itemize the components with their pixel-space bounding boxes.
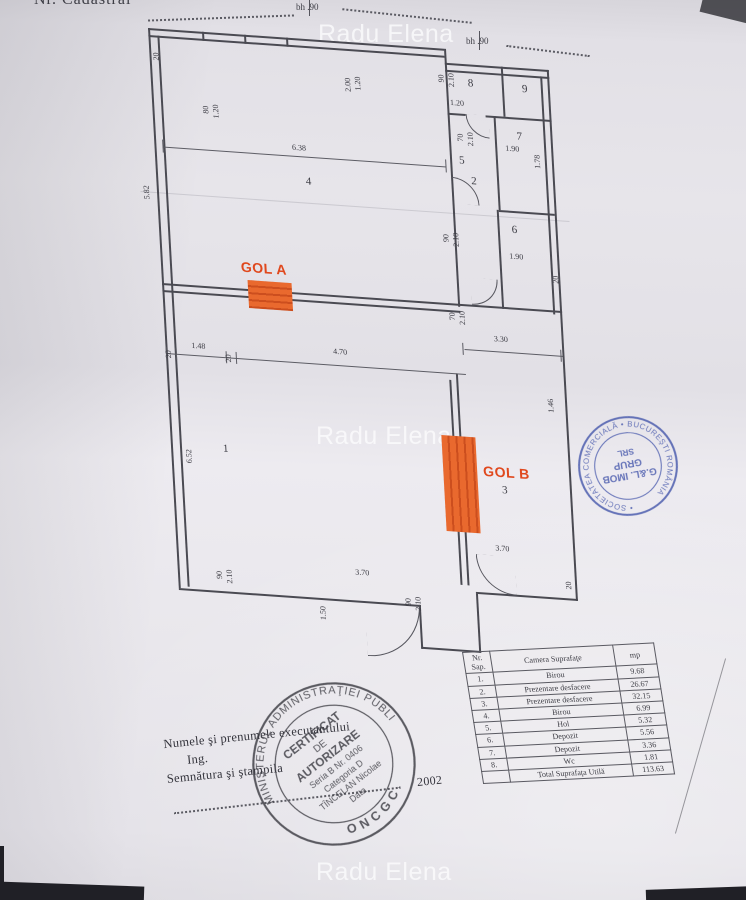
table-total-value: 113.63 bbox=[632, 762, 675, 776]
gol-label: GOL A bbox=[240, 260, 287, 277]
room-number: 3 bbox=[502, 485, 508, 496]
photo-edge-left-sliver bbox=[0, 846, 4, 900]
dimension-label: 3.30 bbox=[494, 335, 508, 344]
bh-mark: bh .90 bbox=[296, 2, 319, 12]
dimension-label: 20 bbox=[152, 52, 160, 61]
stamp-line: SRL bbox=[617, 446, 635, 459]
dimension-label: 6.38 bbox=[292, 144, 306, 153]
dimension-label: 6.52 bbox=[185, 449, 194, 464]
room-number: 6 bbox=[511, 225, 517, 236]
dimension-label: 90 bbox=[442, 234, 450, 243]
dimension-label: 1.90 bbox=[505, 145, 519, 154]
gol-a-highlight bbox=[248, 280, 294, 311]
dimension-label: 1.48 bbox=[191, 342, 205, 351]
room-number: 4 bbox=[306, 177, 312, 188]
dimension-label: 2.10 bbox=[452, 233, 461, 248]
table-header-mp: mp bbox=[613, 643, 657, 666]
wall bbox=[445, 70, 549, 79]
dimension-tick bbox=[445, 159, 447, 172]
table-cell bbox=[482, 770, 511, 784]
room-number: 9 bbox=[522, 84, 528, 95]
scanned-floor-plan-document: Radu Elena Radu Elena Radu Elena Nr. Cad… bbox=[0, 0, 746, 900]
dimension-label: 1.50 bbox=[319, 606, 328, 621]
floor-plan: 20801.202.001.206.3845.82902.101.20702.1… bbox=[148, 28, 580, 631]
dimension-label: 20 bbox=[552, 275, 560, 284]
dimension-label: 20 bbox=[165, 350, 173, 359]
dimension-label: 1.78 bbox=[534, 155, 543, 170]
dimension-label: 2.10 bbox=[447, 73, 456, 88]
wall bbox=[476, 592, 578, 601]
room-number: 5 bbox=[459, 155, 465, 166]
door-arc bbox=[476, 554, 517, 596]
wall bbox=[458, 304, 562, 313]
company-stamp: • SOCIETATEA COMERCIALĂ • BUCUREŞTI ROMÂ… bbox=[568, 406, 688, 526]
table-header-nr: Nr. Sap. bbox=[463, 651, 493, 674]
wall bbox=[448, 113, 466, 116]
gol-label: GOL B bbox=[483, 464, 530, 481]
door-arc bbox=[471, 278, 499, 307]
dimension-label: 2.10 bbox=[467, 132, 476, 147]
dimension-label: 1.20 bbox=[354, 76, 363, 91]
dimension-label: 70 bbox=[449, 312, 457, 321]
room-number: 2 bbox=[471, 176, 477, 187]
room-number: 8 bbox=[468, 78, 474, 89]
dimension-label: 2.10 bbox=[414, 597, 423, 612]
dimension-label: 90 bbox=[404, 598, 412, 607]
dimension-label: 1.20 bbox=[212, 104, 221, 119]
dimension-label: 2.10 bbox=[226, 569, 235, 584]
dimension-label: 1.46 bbox=[547, 399, 556, 414]
dimension-label: 20 bbox=[565, 581, 573, 590]
room-number: 7 bbox=[516, 131, 522, 142]
gol-b-highlight bbox=[441, 435, 480, 533]
dimension-label: 70 bbox=[457, 133, 465, 142]
wall bbox=[499, 210, 555, 216]
bh-mark: bh .90 bbox=[466, 36, 489, 46]
window-tick bbox=[244, 35, 246, 44]
wall bbox=[497, 210, 504, 309]
dimension-label: 5.82 bbox=[143, 185, 152, 200]
dimension-label: 90 bbox=[437, 74, 445, 83]
cadastral-label: Nr. Cadastral bbox=[34, 0, 131, 9]
wall bbox=[494, 116, 501, 210]
dimension-line bbox=[465, 349, 563, 357]
dimension-label: 3.70 bbox=[355, 568, 369, 577]
dimension-label: 90 bbox=[216, 571, 224, 580]
dimension-label: 1.20 bbox=[450, 99, 464, 108]
window-tick bbox=[202, 32, 204, 41]
dimension-label: 2.00 bbox=[344, 78, 353, 93]
dimension-label: 2.10 bbox=[458, 311, 467, 326]
dimension-label: 4.70 bbox=[333, 348, 347, 357]
window-tick bbox=[286, 38, 288, 47]
dimension-label: 3.70 bbox=[495, 544, 509, 553]
surface-table: Nr. Sap. Camera Suprafaţe mp 1.Birou9.68… bbox=[462, 642, 675, 784]
dimension-label: 20 bbox=[225, 354, 233, 363]
dimension-line bbox=[166, 353, 466, 375]
dimension-label: 1.90 bbox=[509, 253, 523, 262]
room-number: 1 bbox=[223, 444, 229, 455]
dimension-label: 80 bbox=[202, 106, 210, 115]
